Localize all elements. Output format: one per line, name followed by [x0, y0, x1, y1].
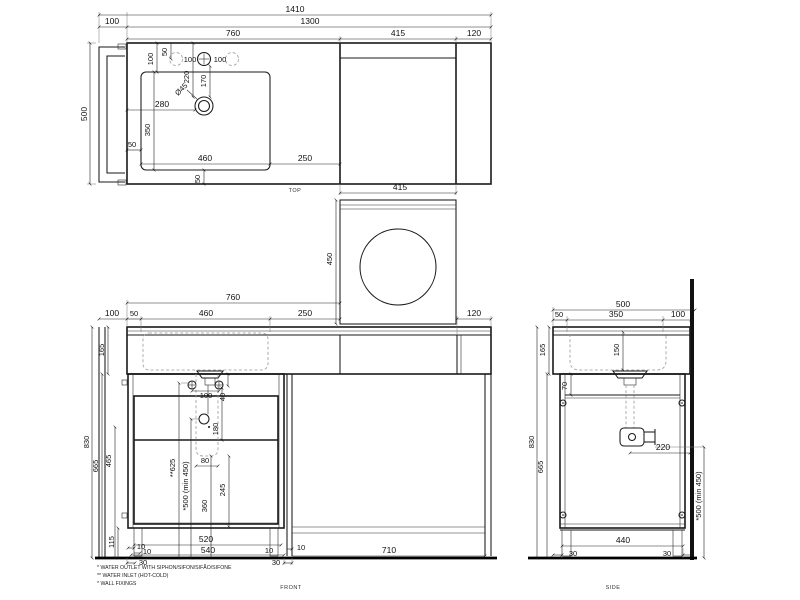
water-outlet [199, 414, 209, 424]
dim-top-back-to-sink: 100 [146, 53, 155, 66]
dim-top-cabinet-width: 1300 [301, 16, 320, 26]
dim-front-outlet-height: *500 (min 450) [181, 461, 190, 511]
dim-front-inlet-height: **625 [168, 459, 177, 477]
siphon-trap [620, 428, 644, 446]
dim-front-sink-to-wm: 250 [298, 308, 312, 318]
dim-top-tap-right: 100 [214, 55, 227, 64]
dim-side-depth: 500 [616, 299, 630, 309]
dim-front-apron: 165 [97, 344, 106, 357]
dim-top-front-gap: 50 [193, 175, 202, 183]
dim-top-sink-to-wm: 250 [298, 153, 312, 163]
dim-top-edge-gap: 50 [128, 140, 136, 149]
dim-top-tap-left: 100 [184, 55, 197, 64]
dim-side-outlet-to-wall: 220 [656, 442, 670, 452]
dim-front-drawer-width: 520 [199, 534, 213, 544]
dim-side-under-counter: 665 [536, 461, 545, 474]
top-view-extensions [87, 12, 491, 195]
dim-top-sink-width: 460 [198, 153, 212, 163]
dim-top-back-to-taps: 50 [160, 48, 169, 56]
top-view: 1410 100 1300 760 415 120 500 100 50 220… [79, 4, 491, 195]
dim-top-rail-offset: 100 [105, 16, 119, 26]
side-view-title: SIDE [606, 585, 621, 591]
front-view-extensions [127, 300, 491, 565]
technical-drawing-page: 1410 100 1300 760 415 120 500 100 50 220… [0, 0, 800, 600]
tap-option-right [226, 53, 239, 66]
dim-side-basin-depth: 350 [609, 309, 623, 319]
dim-front-clearance: 465 [104, 455, 113, 468]
dim-front-right-panel: 120 [467, 308, 481, 318]
dim-front-rail-offset: 100 [105, 308, 119, 318]
dim-front-outlet-drop: 180 [211, 423, 220, 436]
dim-front-gap4: 10 [297, 543, 305, 552]
leg [673, 530, 682, 556]
dim-side-height: 830 [527, 436, 536, 449]
dim-top-sink-depth: 350 [143, 124, 152, 137]
dim-side-base-depth: 440 [616, 535, 630, 545]
wall-fixing-mark [122, 513, 127, 518]
side-view: 500 50 350 100 165 830 665 150 70 220 *5… [527, 279, 704, 591]
dim-wm-width: 415 [393, 182, 407, 192]
note-wall-fixings: * WALL FIXINGS [97, 581, 137, 587]
dim-top-right-section: 120 [467, 28, 481, 38]
dim-front-left-section: 760 [226, 292, 240, 302]
front-view-linework [95, 327, 497, 558]
countertop [127, 327, 491, 374]
dim-top-wm-section: 415 [391, 28, 405, 38]
wm-view: 415 450 [325, 182, 456, 324]
side-view-linework [528, 279, 697, 560]
dim-side-overhang: 50 [555, 310, 563, 319]
dim-side-bowl-depth: 150 [612, 344, 621, 357]
dim-side-inset-front: 30 [569, 549, 577, 558]
dim-front-sink-width: 460 [199, 308, 213, 318]
dim-top-left-section: 760 [226, 28, 240, 38]
dim-front-gap2: 10 [143, 547, 151, 556]
dim-side-outlet-height: *500 (min 450) [694, 471, 703, 521]
dim-side-top-rail: 70 [560, 382, 569, 390]
front-view-title: FRONT [280, 585, 302, 591]
dim-front-trap-width: 80 [201, 456, 209, 465]
dim-front-trap-height: 360 [200, 500, 209, 513]
dim-top-taps-to-hole: 170 [199, 75, 208, 88]
dim-front-gap3: 10 [265, 546, 273, 555]
dim-front-opening: 710 [382, 545, 396, 555]
side-view-extensions [553, 307, 704, 558]
wm-door-circle [360, 229, 436, 305]
dim-top-overall: 1410 [286, 4, 305, 14]
dim-front-fixing-spacing: 100 [200, 391, 213, 400]
towel-rail-outline [99, 47, 125, 182]
dim-front-under-counter: 665 [91, 460, 100, 473]
dim-top-edge-to-hole: 280 [155, 99, 169, 109]
top-view-title: TOP [289, 188, 302, 194]
front-view: 760 100 50 460 250 120 165 830 665 465 1… [82, 292, 497, 591]
tap-option-left [170, 53, 183, 66]
drawing-canvas: 1410 100 1300 760 415 120 500 100 50 220… [0, 0, 800, 600]
dim-top-depth: 500 [79, 107, 89, 121]
dim-front-inset2: 30 [272, 558, 280, 567]
dim-side-to-wall: 100 [671, 309, 685, 319]
tap-hole [195, 97, 213, 115]
wall-fixing-mark [122, 380, 127, 385]
dim-wm-height: 450 [325, 253, 334, 266]
dim-front-height: 830 [82, 436, 91, 449]
dim-front-plinth: 115 [107, 536, 116, 548]
dim-front-edge-gap: 50 [130, 309, 138, 318]
dim-front-fixing-drop: 40 [218, 393, 227, 401]
note-water-inlet: ** WATER INLET (HOT-COLD) [97, 573, 169, 579]
wm-view-linework [340, 200, 456, 324]
note-water-outlet: * WATER OUTLET WITH SIPHON/SIFON/SIFÃO/S… [97, 564, 232, 571]
sink-hidden-outline [143, 333, 268, 370]
dim-side-inset-back: 30 [663, 549, 671, 558]
dim-side-apron: 165 [538, 344, 547, 357]
countertop-side [553, 327, 690, 374]
dim-front-base-clear: 245 [218, 484, 227, 497]
dim-front-box-width: 540 [201, 545, 215, 555]
